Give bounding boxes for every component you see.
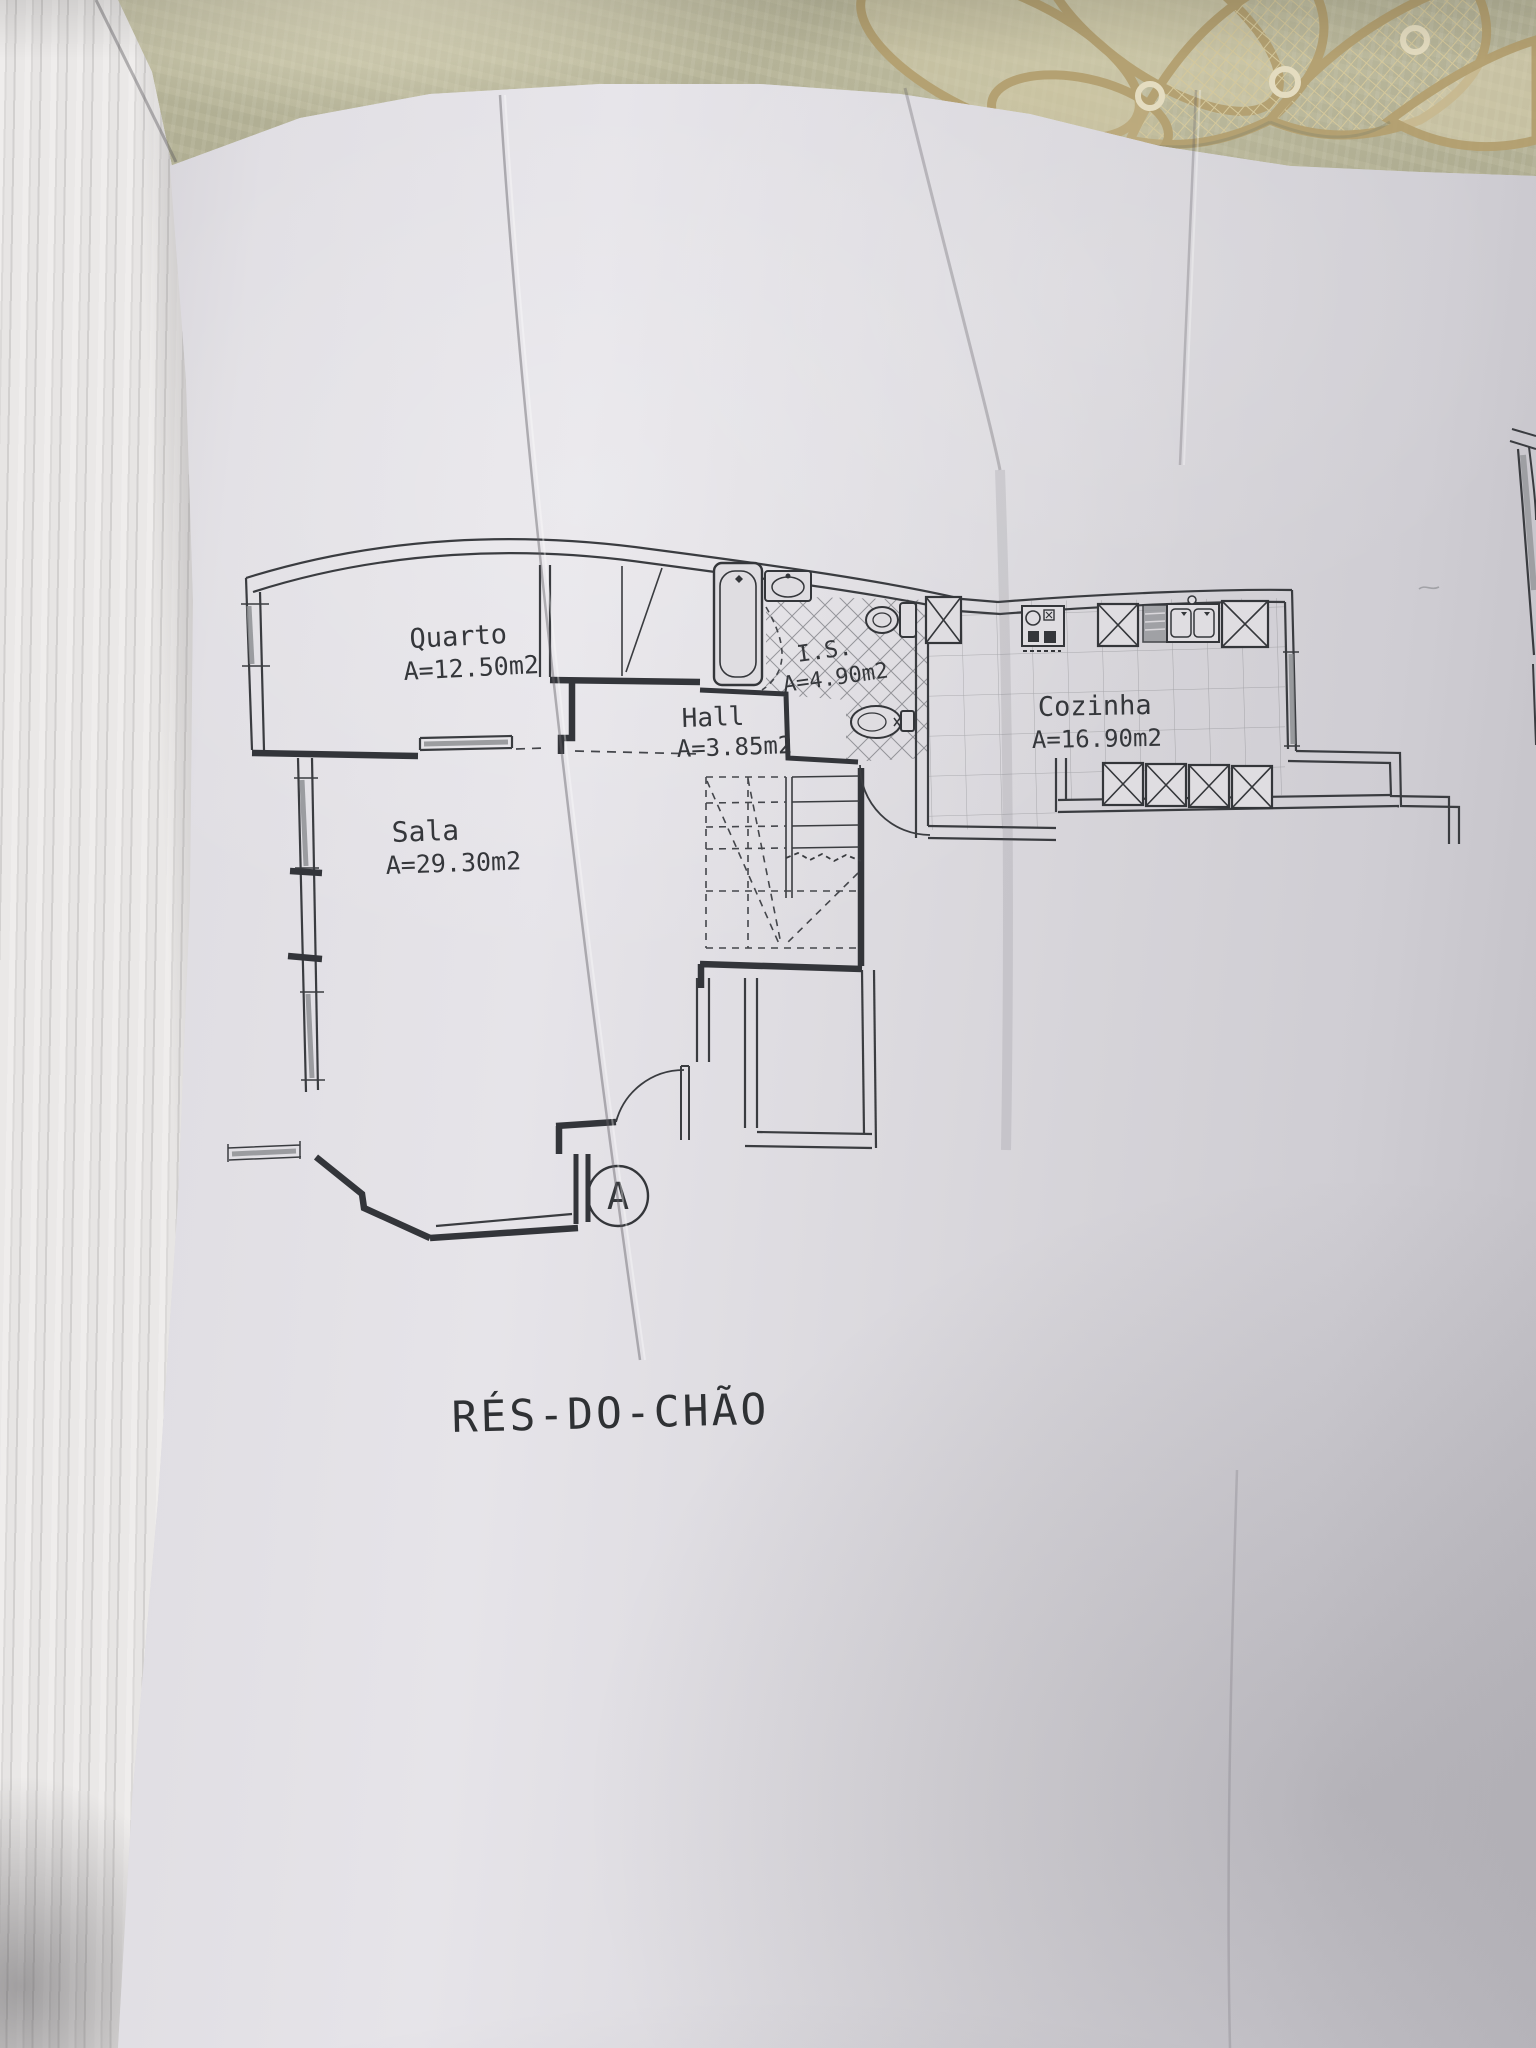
bathtub <box>714 563 762 685</box>
entrance-marker-letter: A <box>607 1175 629 1218</box>
pencil-mark <box>1419 587 1439 589</box>
entrance-marker: A <box>588 1166 648 1226</box>
washbasin <box>765 571 811 601</box>
room-area-hall: A=3.85m2 <box>676 731 793 763</box>
corner-cabinet-box <box>1222 601 1268 647</box>
photo-of-floor-plan: A Quarto A=12.50m2 Sala A=29.30m2 Hall A… <box>0 0 1536 2048</box>
entrance-door <box>616 1066 689 1140</box>
room-label-quarto: Quarto <box>409 619 508 655</box>
bathroom-door-arc <box>860 765 930 835</box>
room-area-quarto: A=12.50m2 <box>403 650 540 686</box>
room-label-cozinha: Cozinha <box>1038 690 1152 723</box>
interior-walls <box>252 680 862 1238</box>
plan-title: RÉS-DO-CHÃO <box>451 1384 770 1443</box>
shaft-box <box>926 597 961 643</box>
toilet <box>866 603 916 637</box>
cabinet-box <box>1098 604 1138 646</box>
stove <box>1022 606 1064 651</box>
closet <box>622 566 662 676</box>
room-label-hall: Hall <box>681 702 745 734</box>
room-area-sala: A=29.30m2 <box>385 846 521 880</box>
staircase <box>706 776 861 948</box>
adjacent-sheet-fragment <box>1510 429 1536 745</box>
counter <box>1143 605 1167 642</box>
floor-plan: A Quarto A=12.50m2 Sala A=29.30m2 Hall A… <box>0 0 1536 2048</box>
room-area-cozinha: A=16.90m2 <box>1032 724 1163 754</box>
room-label-sala: Sala <box>391 814 460 849</box>
dashed-boundaries <box>516 748 700 754</box>
